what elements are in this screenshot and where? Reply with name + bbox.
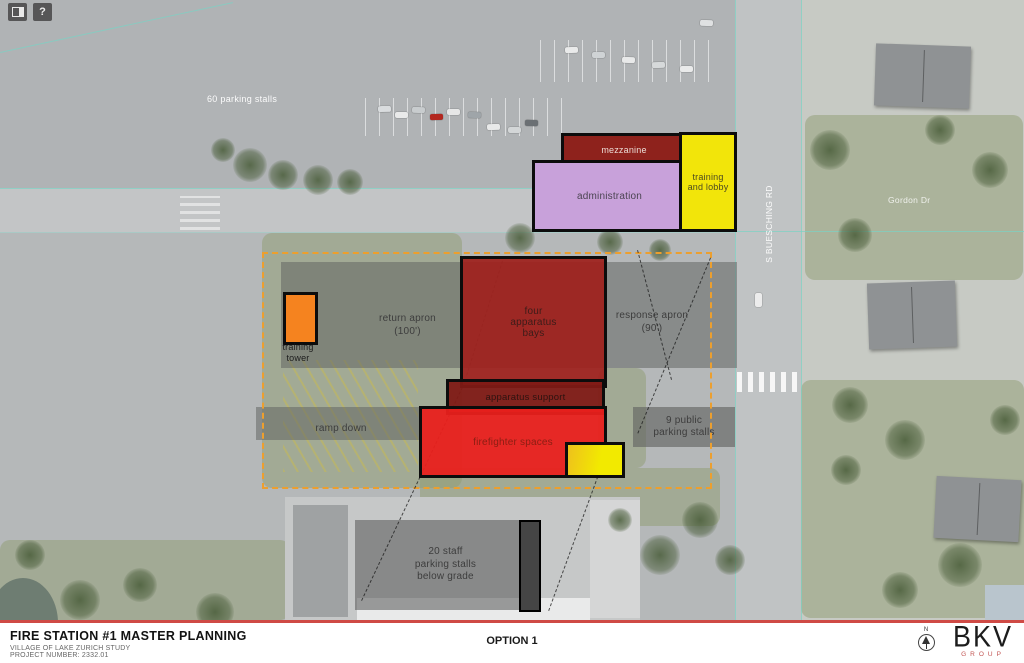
help-icon: ? — [39, 6, 46, 18]
return-apron-label: return apron (100') — [345, 313, 470, 338]
parked-car — [412, 107, 425, 113]
block-training-tower — [283, 292, 318, 345]
staff-parking-label: 20 staff parking stalls below grade — [415, 546, 476, 584]
aerial-map: 9 public parking stalls 20 staff parking… — [0, 0, 1024, 620]
parked-car — [565, 47, 578, 53]
parked-car — [447, 109, 460, 115]
tree — [233, 148, 267, 182]
parked-car — [755, 293, 762, 307]
tree — [60, 580, 100, 620]
tree — [938, 543, 982, 587]
parked-car — [468, 112, 481, 118]
parked-car — [525, 120, 538, 126]
logo-name: BKV — [948, 623, 1018, 652]
sheet-subtitle-2: PROJECT NUMBER: 2332.01 — [10, 652, 109, 659]
tree — [990, 405, 1020, 435]
stair-core-bar — [519, 520, 541, 612]
parked-car — [622, 57, 635, 63]
tree — [268, 160, 298, 190]
tree — [831, 455, 861, 485]
parked-car — [680, 66, 693, 72]
house-roof — [867, 280, 957, 349]
parked-car — [700, 20, 713, 26]
plan-sheet: 9 public parking stalls 20 staff parking… — [0, 0, 1024, 663]
panel-icon — [12, 7, 24, 17]
survey-line — [801, 0, 802, 620]
overview-panel-button[interactable] — [8, 3, 27, 21]
north-letter: N — [916, 627, 936, 633]
street-label-gordon: Gordon Dr — [888, 195, 930, 205]
training-tower-label: training tower — [269, 342, 327, 365]
tree — [505, 223, 535, 253]
building-bottom-right — [985, 585, 1024, 620]
training-lobby-label: training and lobby — [688, 172, 729, 192]
block-training-lobby: training and lobby — [679, 132, 737, 232]
house-roof — [933, 476, 1021, 542]
north-arrow-icon: N — [916, 627, 936, 657]
staff-parking-zone: 20 staff parking stalls below grade — [355, 520, 536, 610]
tree — [682, 502, 718, 538]
tree — [337, 169, 363, 195]
survey-line — [736, 231, 1024, 232]
crosswalk-east — [737, 372, 800, 392]
survey-line — [0, 232, 736, 233]
tree — [832, 387, 868, 423]
help-button[interactable]: ? — [33, 3, 52, 21]
parked-car — [652, 62, 665, 68]
tree — [885, 420, 925, 460]
house-roof — [874, 43, 971, 108]
apparatus-bays-label: four apparatus bays — [510, 306, 556, 339]
block-apparatus-bays: four apparatus bays — [460, 256, 607, 388]
parked-car — [508, 127, 521, 133]
building-wing-dark — [293, 505, 348, 617]
option-label: OPTION 1 — [0, 635, 1024, 647]
tree — [123, 568, 157, 602]
tree — [211, 138, 235, 162]
response-apron-label: response apron (90') — [592, 310, 712, 335]
street-label-buesching: S BUESCHING RD — [764, 178, 774, 270]
parked-car — [430, 114, 443, 120]
administration-label: administration — [577, 191, 642, 202]
bkv-logo: BKV GROUP — [948, 624, 1018, 658]
parked-car — [487, 124, 500, 130]
tree — [925, 115, 955, 145]
parking-count-label: 60 parking stalls — [207, 94, 277, 104]
tree — [303, 165, 333, 195]
tree — [882, 572, 918, 608]
parked-car — [592, 52, 605, 58]
title-bar: FIRE STATION #1 MASTER PLANNING VILLAGE … — [0, 620, 1024, 663]
tree — [810, 130, 850, 170]
block-administration: administration — [532, 160, 687, 232]
tree — [640, 535, 680, 575]
tree — [715, 545, 745, 575]
tree — [972, 152, 1008, 188]
tree — [608, 508, 632, 532]
crosswalk-west — [180, 196, 220, 230]
tree — [15, 540, 45, 570]
mezzanine-label: mezzanine — [601, 145, 646, 155]
block-yellow-annex — [565, 442, 625, 478]
apparatus-support-label: apparatus support — [486, 392, 566, 403]
tree — [838, 218, 872, 252]
ramp-down-label: ramp down — [296, 423, 386, 436]
firefighter-spaces-label: firefighter spaces — [473, 437, 553, 448]
road-buesching — [735, 0, 801, 620]
parked-car — [395, 112, 408, 118]
parked-car — [378, 106, 391, 112]
